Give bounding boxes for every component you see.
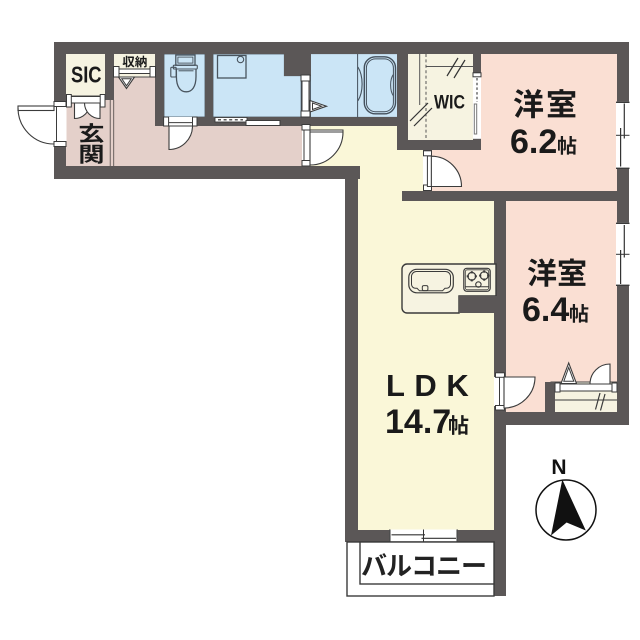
svg-text:SIC: SIC <box>71 62 102 88</box>
svg-text:WIC: WIC <box>434 92 465 114</box>
svg-text:14.7: 14.7 <box>385 403 451 441</box>
svg-text:6.4: 6.4 <box>522 291 569 329</box>
svg-text:LDK: LDK <box>386 368 478 403</box>
svg-text:N: N <box>551 456 566 479</box>
svg-text:6.2: 6.2 <box>510 123 557 161</box>
